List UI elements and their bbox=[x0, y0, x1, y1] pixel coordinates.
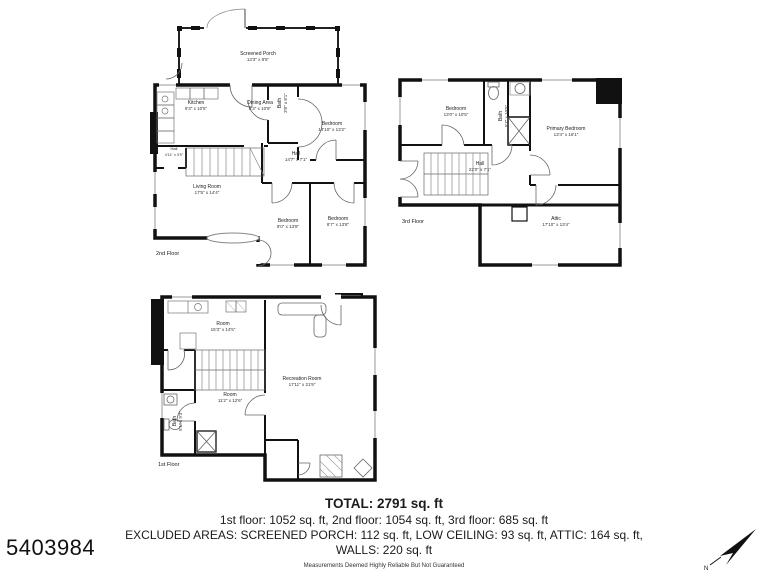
floor-label-3rd: 3rd Floor bbox=[402, 219, 424, 225]
floorplan-page: Screened Porch 13'3" x 8'5" Kitchen 9'3"… bbox=[0, 0, 768, 576]
disclaimer: Measurements Deemed Highly Reliable But … bbox=[0, 563, 768, 569]
listing-id: 5403984 bbox=[6, 535, 95, 561]
floor-label-1st: 1st Floor bbox=[158, 462, 179, 468]
area-summary: TOTAL: 2791 sq. ft 1st floor: 1052 sq. f… bbox=[0, 496, 768, 569]
north-arrow-icon: N bbox=[700, 526, 762, 572]
floor-label-2nd: 2nd Floor bbox=[156, 251, 179, 257]
wall-fill bbox=[596, 78, 622, 104]
total-area: TOTAL: 2791 sq. ft bbox=[0, 496, 768, 511]
bow-window bbox=[207, 233, 259, 243]
north-label: N bbox=[704, 566, 708, 572]
floorplan-3rd-floor bbox=[396, 73, 624, 271]
wall-fill bbox=[151, 299, 164, 365]
floor-areas: 1st floor: 1052 sq. ft, 2nd floor: 1054 … bbox=[0, 513, 768, 527]
excluded-areas: EXCLUDED AREAS: SCREENED PORCH: 112 sq. … bbox=[0, 528, 768, 542]
floorplan-1st-floor bbox=[148, 293, 378, 485]
floorplan-2nd-floor bbox=[146, 2, 372, 268]
walls-area: WALLS: 220 sq. ft bbox=[0, 543, 768, 557]
